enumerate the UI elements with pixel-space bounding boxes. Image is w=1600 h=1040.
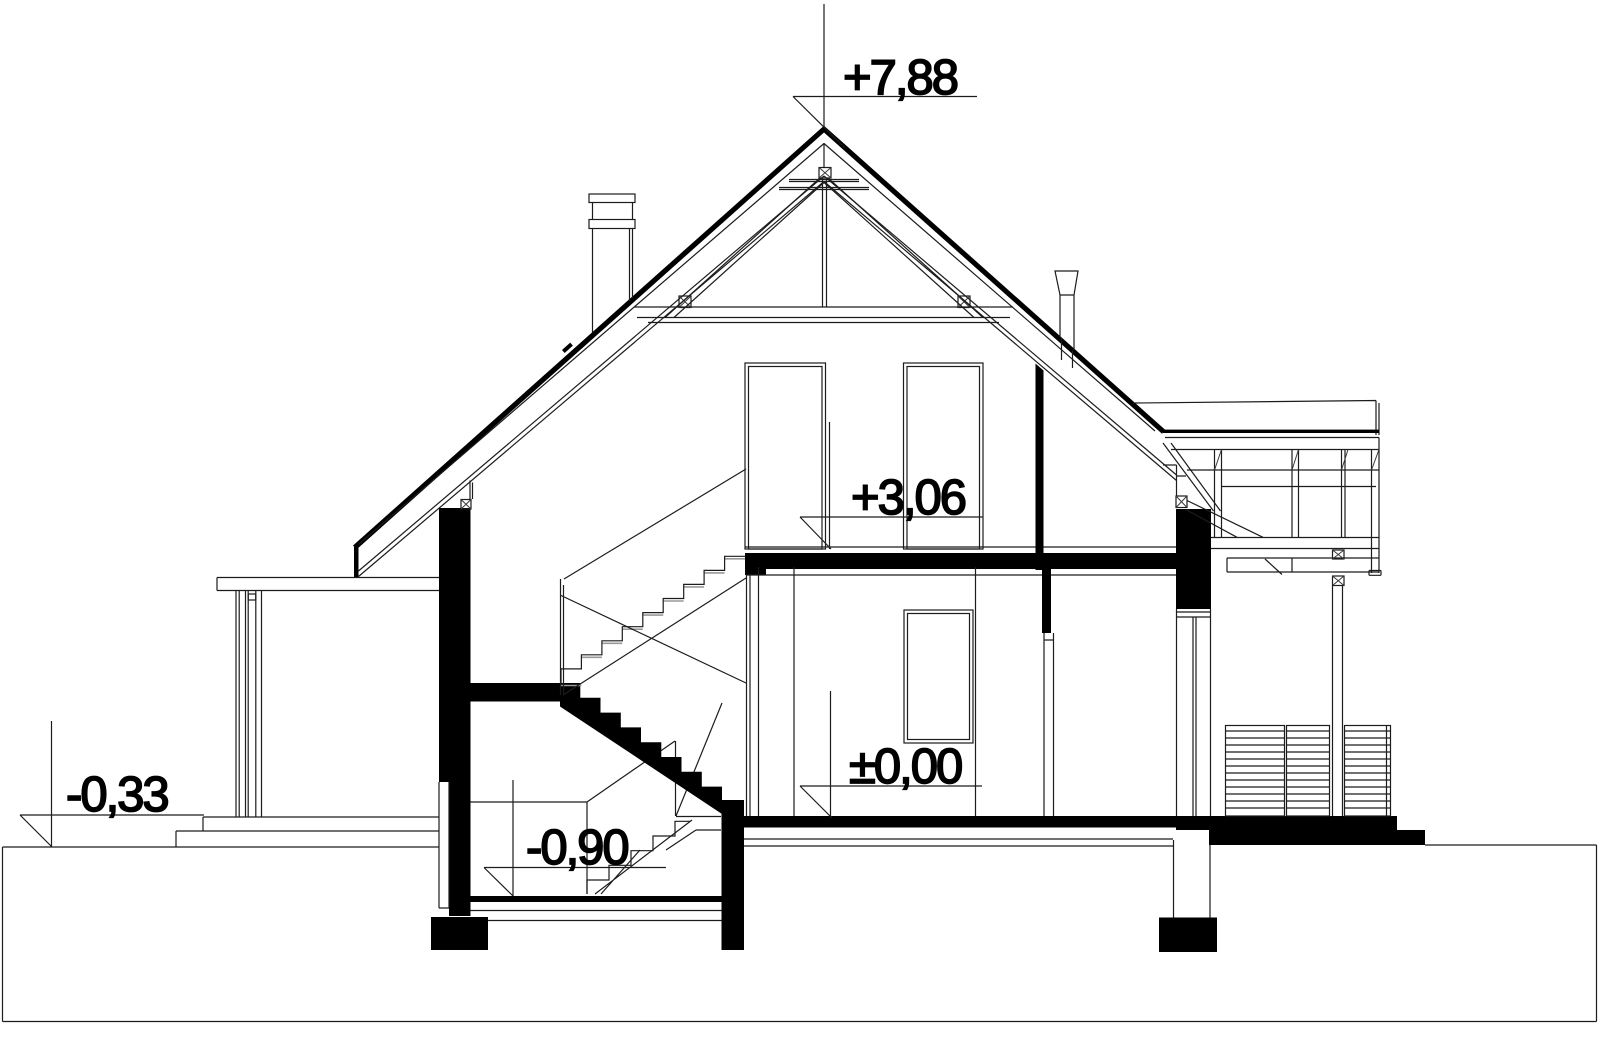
svg-text:-0,33: -0,33	[66, 768, 168, 822]
svg-text:±0,00: ±0,00	[849, 740, 962, 794]
svg-text:+3,06: +3,06	[851, 471, 966, 525]
svg-text:+7,88: +7,88	[843, 51, 958, 105]
svg-text:-0,90: -0,90	[526, 821, 628, 875]
